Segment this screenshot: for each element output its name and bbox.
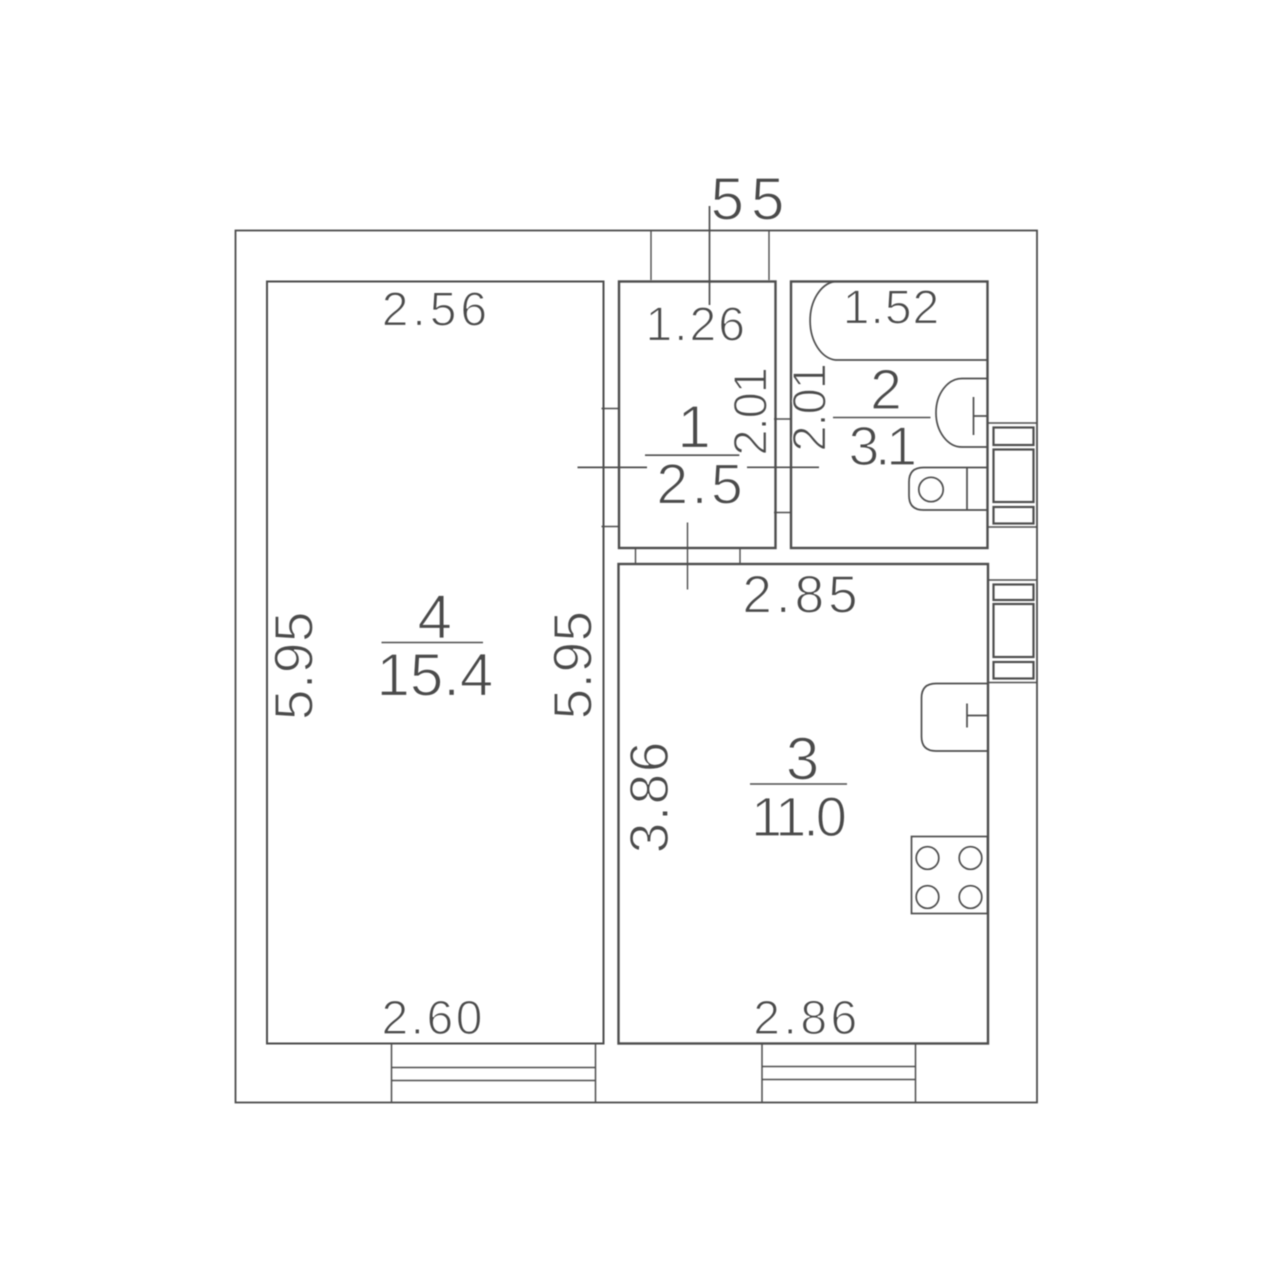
svg-text:11.0: 11.0 <box>751 785 845 848</box>
svg-text:2: 2 <box>870 358 902 422</box>
svg-text:2.01: 2.01 <box>724 368 777 455</box>
svg-text:1.26: 1.26 <box>645 299 746 352</box>
svg-text:2.5: 2.5 <box>656 453 746 517</box>
svg-text:5.95: 5.95 <box>542 610 604 719</box>
svg-text:2.01: 2.01 <box>783 364 836 451</box>
svg-text:1: 1 <box>677 394 710 461</box>
svg-text:1.52: 1.52 <box>843 281 940 334</box>
svg-text:55: 55 <box>711 166 792 233</box>
svg-text:15.4: 15.4 <box>377 641 494 708</box>
svg-text:2.56: 2.56 <box>382 284 491 337</box>
svg-text:3.86: 3.86 <box>618 740 680 853</box>
svg-text:3.1: 3.1 <box>849 415 915 477</box>
svg-text:2.86: 2.86 <box>753 992 860 1045</box>
svg-text:2.85: 2.85 <box>742 566 861 625</box>
svg-text:5.95: 5.95 <box>262 611 324 720</box>
svg-text:3: 3 <box>786 726 819 793</box>
svg-text:2.60: 2.60 <box>381 992 484 1045</box>
